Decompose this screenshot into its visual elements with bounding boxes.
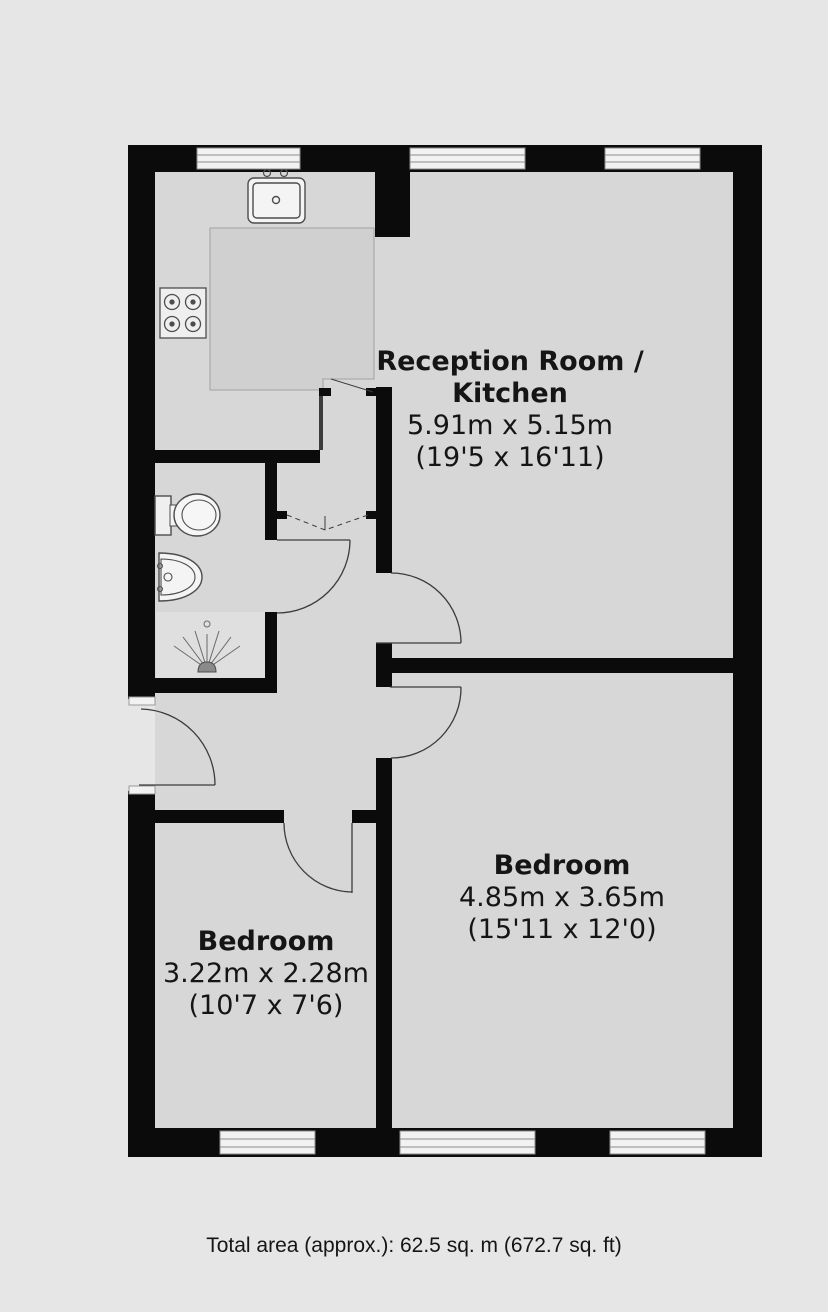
wall-kitchen-south (155, 450, 320, 463)
wall-bathroom-east-lower (265, 612, 277, 678)
wall-bathroom-east-upper (265, 463, 277, 540)
wall-left-upper (128, 145, 155, 699)
hob-icon (160, 288, 206, 338)
wall-lobby-thin (319, 393, 323, 450)
windows-bottom (220, 1131, 705, 1154)
sink-icon (248, 170, 305, 224)
floorplan-drawing (0, 0, 828, 1312)
wall-stub-top (375, 172, 410, 237)
wall-nub (319, 388, 331, 396)
wall-hall-east-upper (376, 387, 392, 573)
wall-bedroom-small-north-right (352, 810, 376, 823)
windows-top (197, 148, 700, 169)
window-icon (610, 1131, 705, 1154)
wall-nub (366, 388, 376, 396)
wall-bathroom-south (128, 678, 277, 693)
wall-reception-bedroom-divider (388, 658, 733, 673)
entrance-sills (129, 697, 155, 794)
total-area-label: Total area (approx.): 62.5 sq. m (672.7 … (164, 1234, 664, 1258)
wall-left-lower (128, 791, 155, 1157)
kitchen-counter (210, 228, 374, 390)
wall-nub (277, 511, 287, 519)
window-icon (400, 1131, 535, 1154)
wall-right (733, 145, 762, 1157)
window-icon (410, 148, 525, 169)
floorplan-page: Reception Room / Kitchen 5.91m x 5.15m (… (0, 0, 828, 1312)
window-icon (605, 148, 700, 169)
wall-hall-east-lower (376, 758, 392, 1128)
window-icon (220, 1131, 315, 1154)
window-icon (197, 148, 300, 169)
toilet-icon (155, 494, 220, 536)
wall-bedroom-small-north-left (155, 810, 284, 823)
